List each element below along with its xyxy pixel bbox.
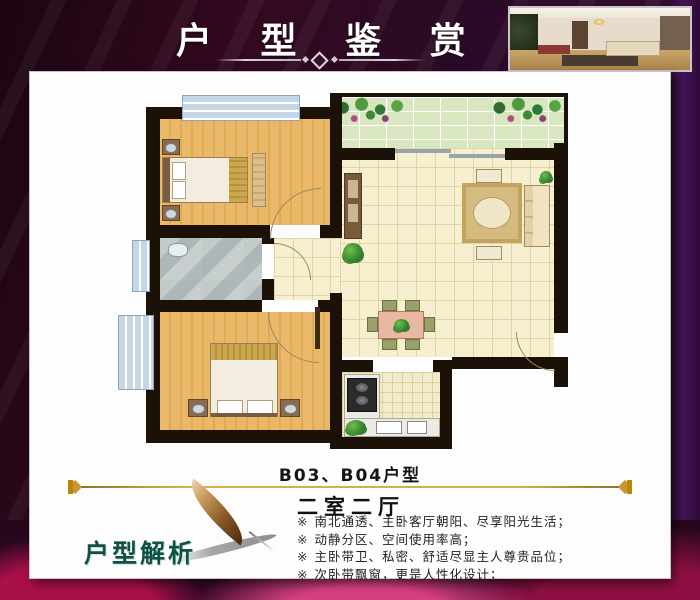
dining-chair: [424, 317, 435, 332]
wall: [505, 148, 568, 160]
sink: [376, 421, 402, 434]
corridor-passage: [330, 238, 340, 293]
bullet-marker: ※: [297, 567, 308, 582]
gold-ornament-right-stem: [627, 480, 632, 494]
analysis-bullet: ※主卧带卫、私密、舒适尽显主人尊贵品位；: [297, 550, 669, 565]
wall: [330, 360, 373, 372]
bed-runner: [252, 153, 266, 207]
bay-window-second-bedroom: [118, 315, 154, 390]
plant-sofa-corner: [540, 171, 552, 183]
wall: [146, 300, 262, 312]
dining-table: [378, 311, 424, 339]
nightstand: [162, 205, 180, 221]
wall: [554, 369, 568, 387]
wall: [146, 225, 270, 238]
photo-chandelier: [594, 19, 604, 25]
plant-living: [343, 243, 363, 263]
wall: [146, 430, 340, 443]
bed-master: [162, 157, 248, 203]
bed-pillow: [217, 400, 243, 414]
unit-label: B03、B04户型: [30, 461, 670, 486]
photo-bench: [538, 45, 570, 54]
ornament-divider-icon: [215, 54, 425, 68]
nightstand: [162, 139, 180, 155]
bullet-marker: ※: [297, 549, 308, 564]
bullet-text: 动静分区、空间使用率高；: [314, 532, 476, 547]
bed-headboard: [211, 413, 277, 417]
bed-second: [210, 343, 278, 417]
dining-chair: [382, 300, 397, 311]
flourish-line-right: [339, 59, 425, 61]
wall: [330, 148, 395, 160]
nightstand: [188, 399, 208, 417]
bullet-text: 主卧带卫、私密、舒适尽显主人尊贵品位；: [314, 549, 571, 564]
bed-throw: [211, 344, 277, 360]
bullet-marker: ※: [297, 514, 308, 529]
bed-pillow: [247, 400, 273, 414]
background-right-band: [668, 0, 700, 600]
window-bathroom: [132, 240, 150, 292]
wall: [440, 360, 452, 449]
sink: [407, 421, 427, 434]
door-leaf-second-bedroom: [315, 307, 320, 349]
dining-chair: [367, 317, 378, 332]
wall: [554, 143, 568, 333]
gold-divider-line: [68, 486, 632, 488]
analysis-bullet: ※动静分区、空间使用率高；: [297, 533, 669, 548]
plant-kitchen: [346, 420, 366, 435]
flourish-dot-left: [302, 56, 309, 63]
wall: [262, 279, 274, 300]
bullet-marker: ※: [297, 532, 308, 547]
photo-doorway: [572, 21, 588, 49]
gold-ornament-left-stem: [68, 480, 73, 494]
bathroom-fixture: [168, 243, 188, 257]
analysis-heading: 户型解析: [84, 534, 196, 570]
flourish-line-left: [215, 59, 301, 61]
wall: [320, 225, 340, 238]
analysis-bullet-list: ※南北通透、主卧客厅朝阳、尽享阳光生活； ※动静分区、空间使用率高； ※主卧带卫…: [297, 515, 669, 585]
bed-pillow: [172, 181, 186, 199]
bed-pillow: [172, 162, 186, 180]
wall: [564, 93, 568, 148]
flourish-dot-right: [331, 56, 338, 63]
bed-headboard: [163, 158, 170, 202]
tv-cabinet: [344, 173, 362, 239]
analysis-bullet: ※南北通透、主卧客厅朝阳、尽享阳光生活；: [297, 515, 669, 530]
balcony-slider-leaf: [449, 154, 505, 158]
stove: [347, 378, 377, 412]
interior-photo: [508, 6, 692, 72]
floor-plan: [118, 85, 580, 457]
nightstand: [280, 399, 300, 417]
flourish-diamond: [310, 51, 328, 69]
wall: [330, 93, 342, 238]
bed-throw: [229, 158, 247, 202]
dining-chair: [405, 300, 420, 311]
wall: [330, 437, 452, 449]
balcony-slider-leaf: [395, 149, 451, 153]
photo-sofa: [606, 41, 660, 56]
side-table: [476, 246, 502, 260]
living-rug: [462, 183, 522, 243]
analysis-bullet: ※次卧带飘窗，更是人性化设计；: [297, 568, 669, 583]
window-master: [182, 95, 300, 121]
side-table: [476, 169, 502, 183]
dining-chair: [405, 339, 420, 350]
wall: [332, 93, 568, 97]
bullet-text: 南北通透、主卧客厅朝阳、尽享阳光生活；: [314, 514, 571, 529]
bullet-text: 次卧带飘窗，更是人性化设计；: [314, 567, 503, 582]
dining-chair: [382, 339, 397, 350]
photo-rug: [562, 55, 638, 66]
sofa: [524, 185, 550, 247]
